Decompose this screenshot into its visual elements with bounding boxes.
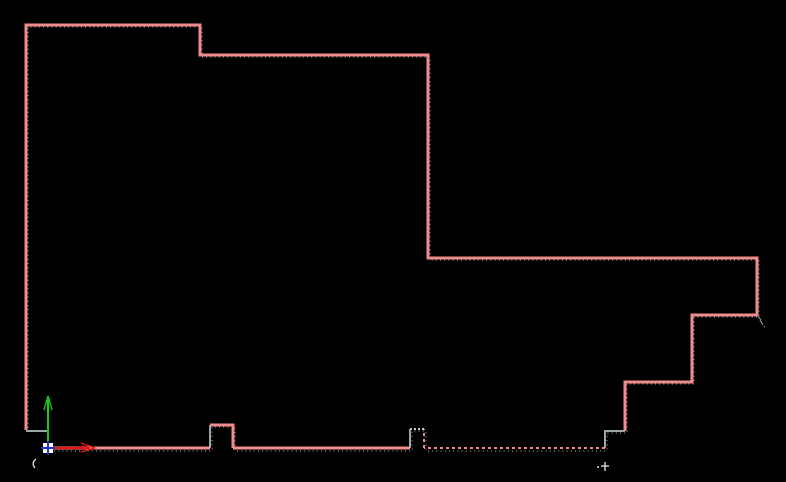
profile-notch1[interactable] xyxy=(210,425,233,448)
profile-main-outline[interactable] xyxy=(26,25,757,431)
pick-cursor-mark xyxy=(764,326,765,327)
ucs-icon xyxy=(41,396,95,455)
y-axis-arrow-icon xyxy=(44,396,52,448)
profile-dotted-trace[interactable] xyxy=(28,27,759,451)
drawing-canvas[interactable] xyxy=(0,0,786,482)
blip-arc-left xyxy=(33,459,36,468)
blip-dot-right xyxy=(597,466,599,468)
x-axis-arrow-icon xyxy=(54,443,95,452)
cad-viewport xyxy=(0,0,786,482)
pick-cursor-mark xyxy=(757,315,765,327)
pick-cursor-mark xyxy=(760,320,763,325)
ucs-origin-marker xyxy=(41,441,55,455)
profile-trace-group[interactable] xyxy=(28,27,759,451)
blip-marks-group xyxy=(33,459,609,471)
